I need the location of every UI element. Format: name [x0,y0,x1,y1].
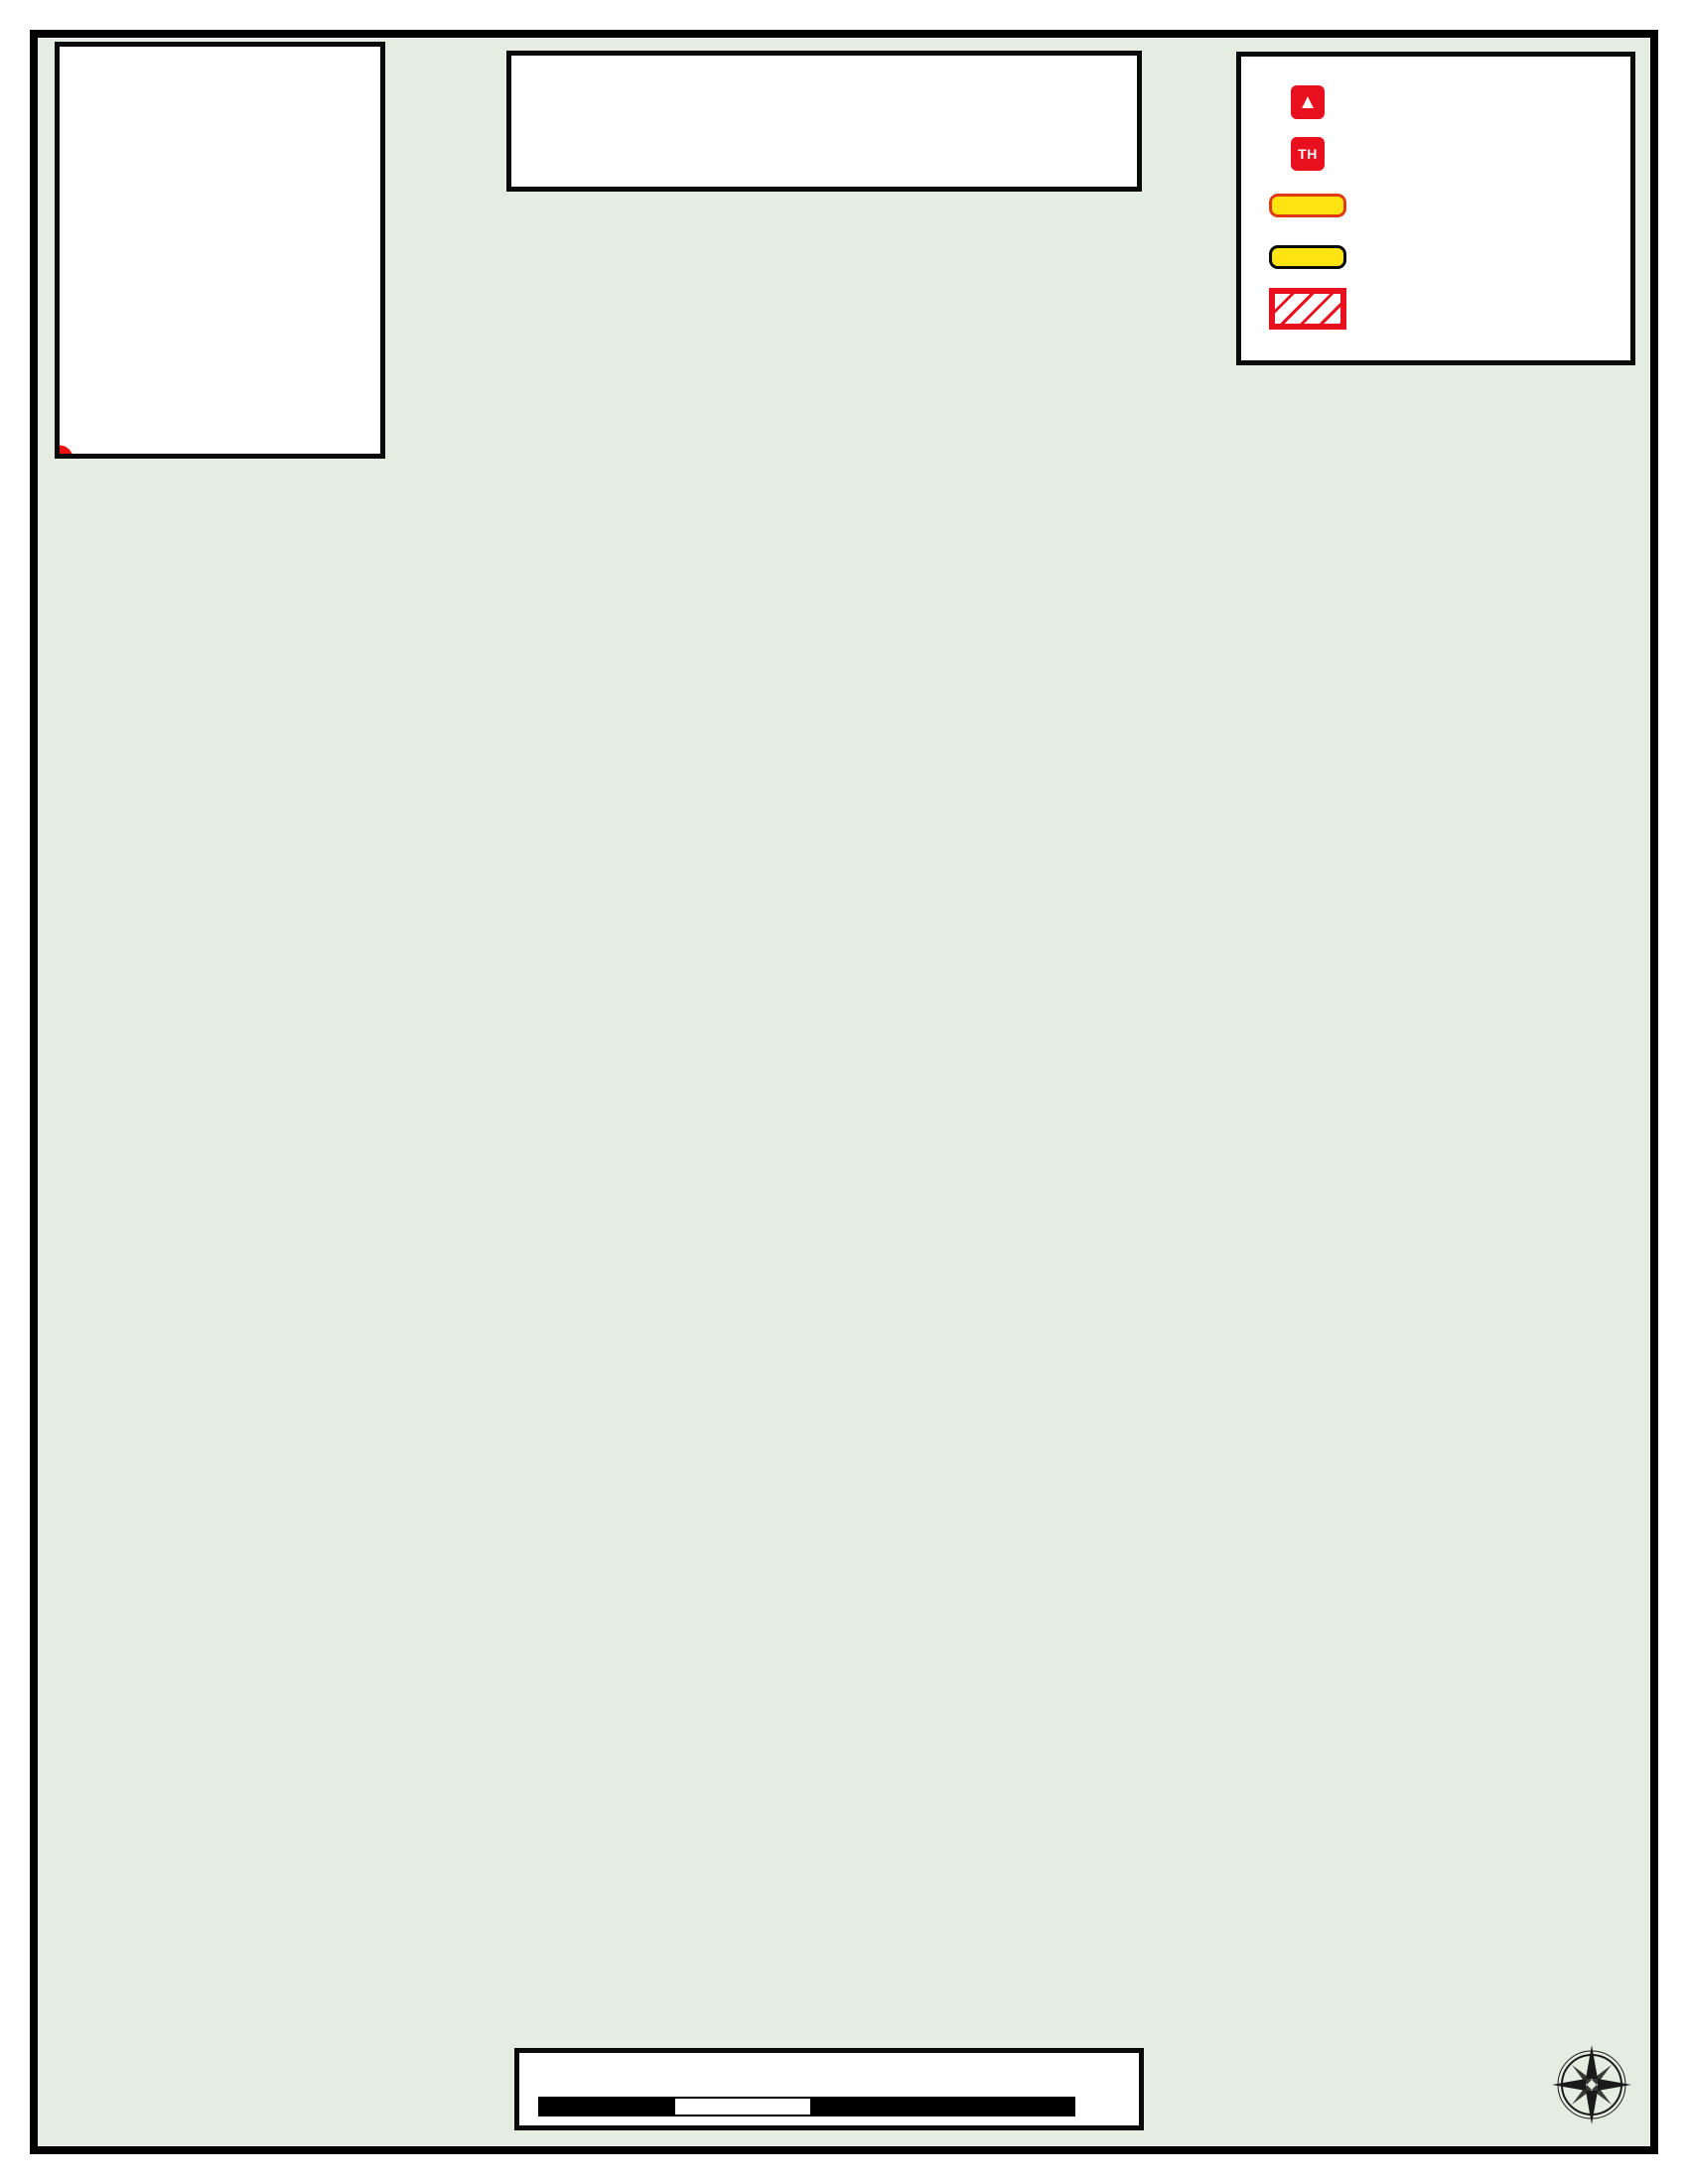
title-box [506,51,1142,192]
legend-item-closed-area [1241,283,1630,335]
area-swatch-icon [1269,288,1346,330]
legend-item-closed-roads [1241,231,1630,283]
utah-inset-map [55,42,385,459]
campground-icon: ▲ [1269,85,1346,119]
trailhead-icon: TH [1269,137,1346,171]
utah-inset-art [60,47,380,454]
road-line-icon [1269,245,1346,269]
scale-bar-segments [538,2097,1075,2116]
legend-item-closed-trailhead: TH [1241,128,1630,180]
compass-star [1527,2015,1656,2150]
legend-item-closed-trails [1241,180,1630,231]
trail-line-icon [1269,194,1346,217]
legend-item-closed-campground: ▲ [1241,76,1630,128]
scale-bar [514,2048,1144,2130]
compass-rose [1527,2015,1656,2150]
map-page: ▲ TH [0,0,1688,2184]
legend: ▲ TH [1236,52,1635,365]
